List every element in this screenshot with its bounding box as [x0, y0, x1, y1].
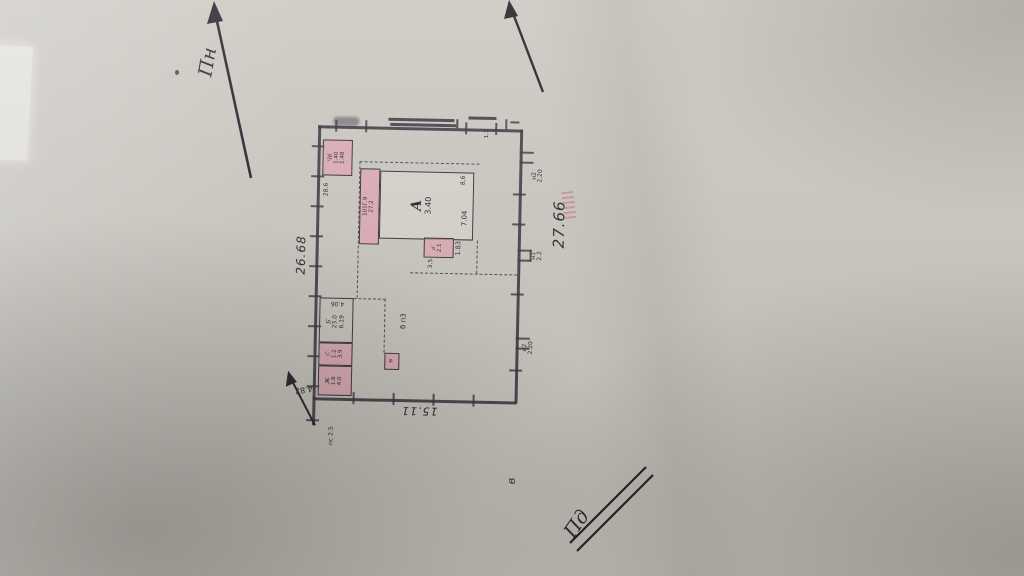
gate-n1-label: н1 2.2 [531, 251, 544, 261]
ink-dot [175, 70, 179, 75]
building-main-label: А 3.40 [410, 196, 434, 214]
building-main-height: 8,6 [461, 176, 468, 186]
tick [311, 175, 324, 177]
gate-bar [388, 118, 454, 122]
boundary-right [514, 130, 522, 404]
corner-shed-note: 28.6 [324, 183, 331, 196]
tick [512, 223, 525, 225]
stamp-scribble [561, 190, 576, 219]
inner-boundary [360, 161, 480, 165]
boundary-bottom [313, 397, 517, 404]
tick [513, 193, 526, 195]
tick [392, 393, 394, 405]
small-square-label: в [388, 359, 395, 363]
gate-tick [520, 152, 534, 154]
building-main-width: 7.04 [461, 211, 469, 227]
secondary-arrow-icon [495, 0, 555, 100]
photographed-site-plan: Пн [0, 0, 1024, 576]
tick [465, 122, 467, 134]
strip-label: 101Г.9 27.2 [363, 197, 375, 216]
site-plan: 1.1 Чб 1.40 1.48 28.6 101Г.9 27.2 А 3.40… [276, 97, 614, 469]
gate-tick [516, 337, 530, 339]
corner-arrow-icon [277, 347, 324, 433]
room-c-label: С 1.2 3.9 [326, 349, 344, 358]
tick [505, 119, 507, 129]
corner-shed-label: Чб 1.40 1.48 [329, 151, 347, 164]
paper-edge-patch [0, 45, 33, 161]
tick [511, 293, 524, 295]
inner-boundary [354, 298, 386, 300]
tick [510, 121, 519, 123]
shed-note-label: б п3 [400, 313, 408, 329]
annex-label: а' 2.1 [432, 243, 444, 252]
boundary-top [318, 125, 522, 132]
page-letter: в [506, 478, 518, 484]
top-mark-label: 1.1 [485, 129, 491, 138]
gate-tick [520, 162, 534, 164]
tick [472, 395, 474, 407]
tick [352, 392, 354, 404]
room-b-label: Б 23.0 6.19 [326, 315, 346, 329]
tick [311, 205, 324, 207]
room-zh-label: Ж 1.6 4.0 [326, 376, 344, 385]
north-arrow-icon [185, 0, 275, 190]
annex-side-dim: 1.83 [455, 241, 462, 256]
corner-note-label: пс 2.5 [328, 426, 335, 445]
tick [365, 120, 367, 132]
north-label: Пн [195, 46, 220, 78]
room-b-top-dim: 4.06 [331, 299, 344, 306]
ink-smudge [333, 117, 359, 127]
tick [310, 235, 323, 237]
inner-boundary [410, 272, 517, 275]
gate-n2-top-label: н2 2.20 [532, 169, 545, 183]
gate-n2-bottom-label: н2 2.20 [522, 341, 535, 355]
dim-bottom-label: 15.11 [401, 404, 438, 417]
tick [309, 265, 322, 267]
tick [495, 123, 497, 135]
inner-boundary [384, 299, 386, 353]
gate-bar [468, 116, 496, 119]
tick [509, 369, 522, 371]
gate-bar [456, 119, 458, 128]
annex-under-dim: 3.5 [428, 259, 435, 269]
dim-left-label: 26.68 [295, 235, 309, 275]
inner-boundary [476, 241, 478, 274]
